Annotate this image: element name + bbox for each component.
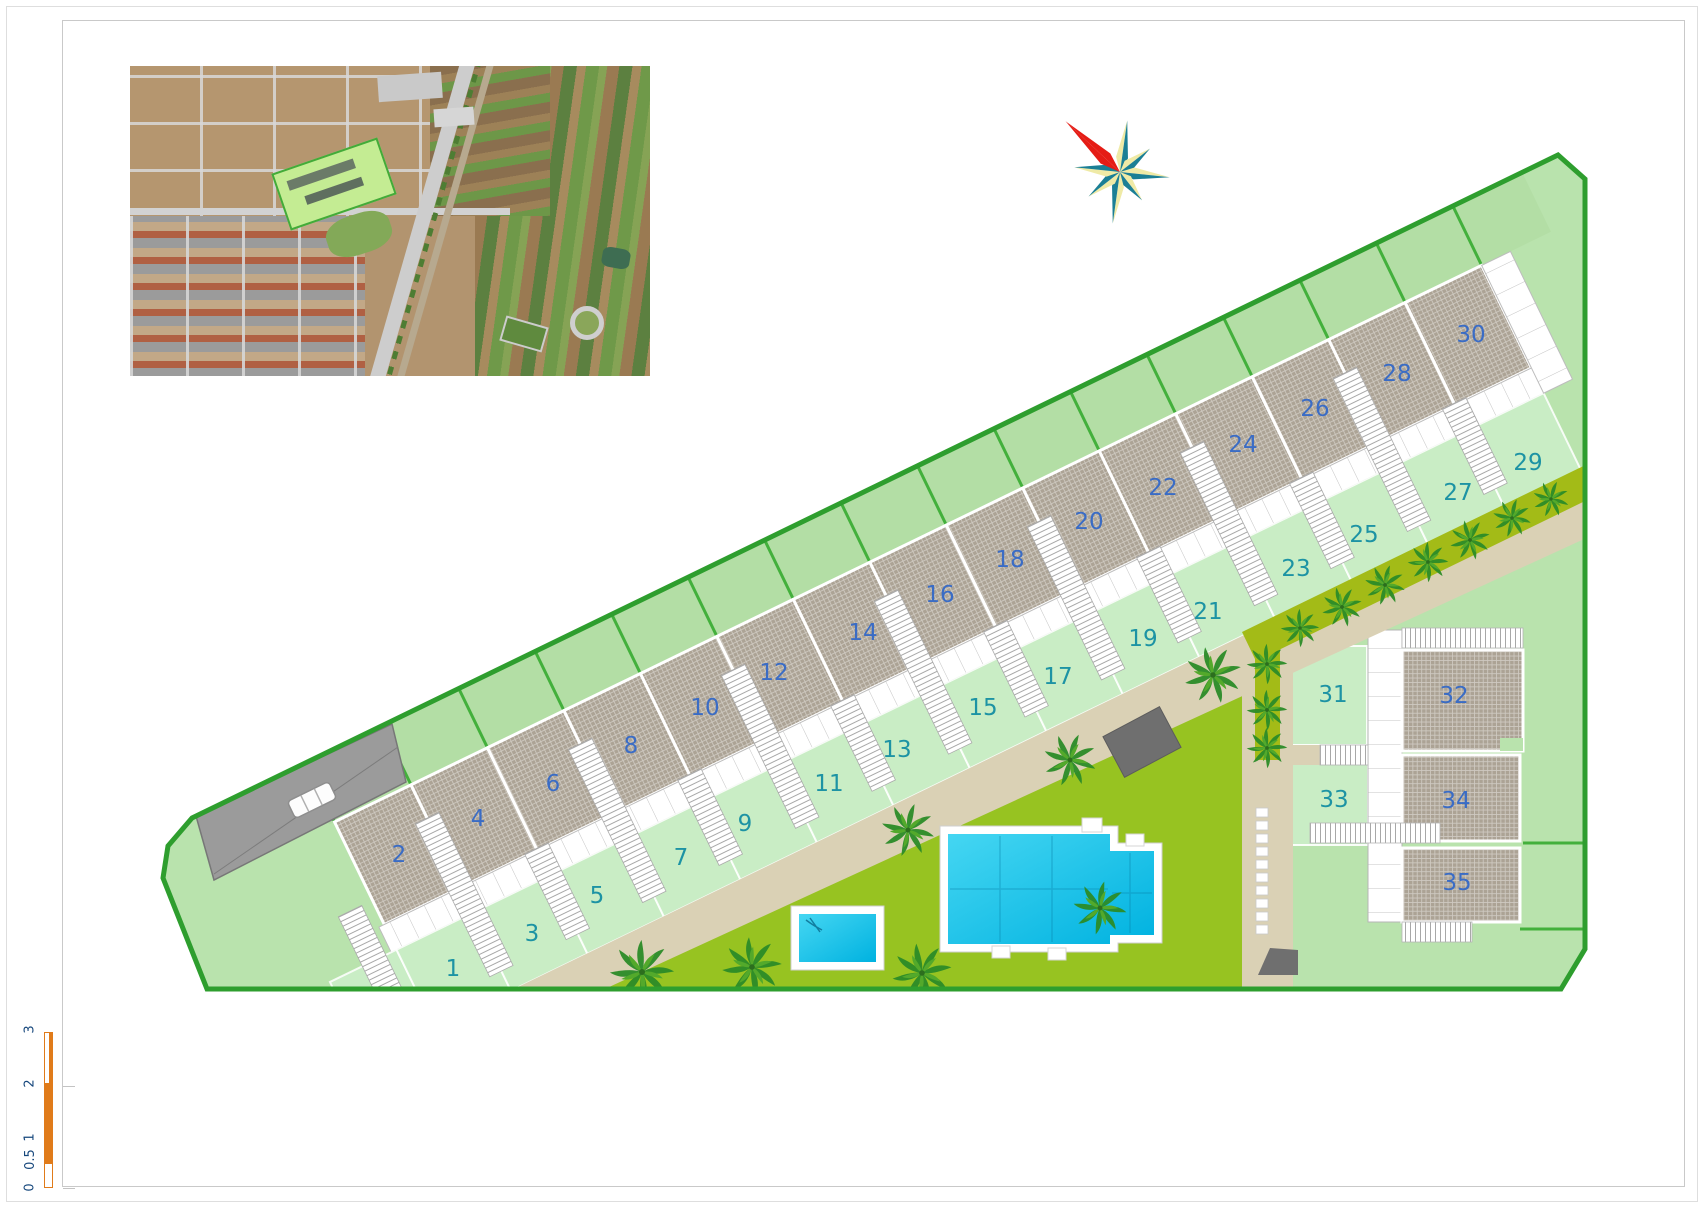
plot-label: 23	[1281, 556, 1310, 582]
main-pool	[940, 818, 1162, 960]
plot-label: 27	[1443, 480, 1472, 506]
plot-label: 32	[1439, 683, 1468, 709]
plot-label: 12	[759, 660, 788, 686]
scale-bar-segment	[44, 1084, 53, 1137]
plot-label: 13	[882, 737, 911, 763]
scale-bar-segment	[44, 1137, 53, 1163]
plot-label: 3	[525, 921, 540, 947]
plot-label: 35	[1442, 870, 1471, 896]
plot-label: 6	[546, 771, 561, 797]
plot-label: 4	[471, 806, 486, 832]
site-plan-drawing: 1 2 3 4 5 6 7 8 9 10 11 12 13 14 15 16 1…	[0, 0, 1704, 1208]
scale-label: 3	[23, 1025, 38, 1033]
site-plan-page: 1 2 3 4 5 6 7 8 9 10 11 12 13 14 15 16 1…	[0, 0, 1704, 1208]
plot-label: 26	[1300, 396, 1329, 422]
pool-ladder-platform	[1048, 948, 1066, 960]
scale-bar-segment	[44, 1032, 53, 1084]
plot-label: 1	[446, 956, 461, 982]
pool-ladder-platform	[1126, 834, 1144, 846]
plot-label: 22	[1148, 475, 1177, 501]
scale-label: 2	[23, 1079, 38, 1087]
plot-label: 16	[925, 582, 954, 608]
plot-label: 28	[1382, 361, 1411, 387]
scale-label: 0	[23, 1183, 38, 1191]
plot-label: 8	[624, 733, 639, 759]
plot-label: 31	[1318, 682, 1347, 708]
stair-strip	[1320, 745, 1368, 765]
pool-ladder-platform	[992, 946, 1010, 958]
plot-label: 21	[1193, 599, 1222, 625]
stair-strip	[1310, 823, 1440, 843]
plot-label: 9	[738, 811, 753, 837]
stair-strip	[1402, 922, 1472, 942]
plot-label: 34	[1441, 788, 1470, 814]
pool-ladder-platform	[1082, 818, 1102, 832]
plot-label: 7	[674, 845, 689, 871]
plot-label: 5	[590, 883, 605, 909]
plot-label: 17	[1043, 664, 1072, 690]
plot-label: 20	[1074, 509, 1103, 535]
plot-label: 15	[968, 695, 997, 721]
plot-label: 2	[392, 842, 407, 868]
plot-label: 10	[690, 695, 719, 721]
stair-strip	[1402, 628, 1523, 648]
kids-pool	[791, 906, 884, 970]
plot-label: 14	[848, 620, 877, 646]
plot-label: 30	[1456, 322, 1485, 348]
plot-label: 11	[814, 771, 843, 797]
roof-notch	[1500, 738, 1523, 751]
scale-tick	[63, 1188, 75, 1189]
scale-label: 0.5	[23, 1149, 38, 1170]
scale-bar-segment	[44, 1163, 53, 1188]
plot-label: 24	[1228, 432, 1257, 458]
plot-label: 18	[995, 547, 1024, 573]
plot-label: 33	[1319, 787, 1348, 813]
scale-label: 1	[23, 1133, 38, 1141]
plot-label: 29	[1513, 450, 1542, 476]
scale-tick	[63, 1086, 75, 1087]
plot-label: 19	[1128, 626, 1157, 652]
terrace-cells	[1368, 630, 1402, 922]
plot-label: 25	[1349, 522, 1378, 548]
